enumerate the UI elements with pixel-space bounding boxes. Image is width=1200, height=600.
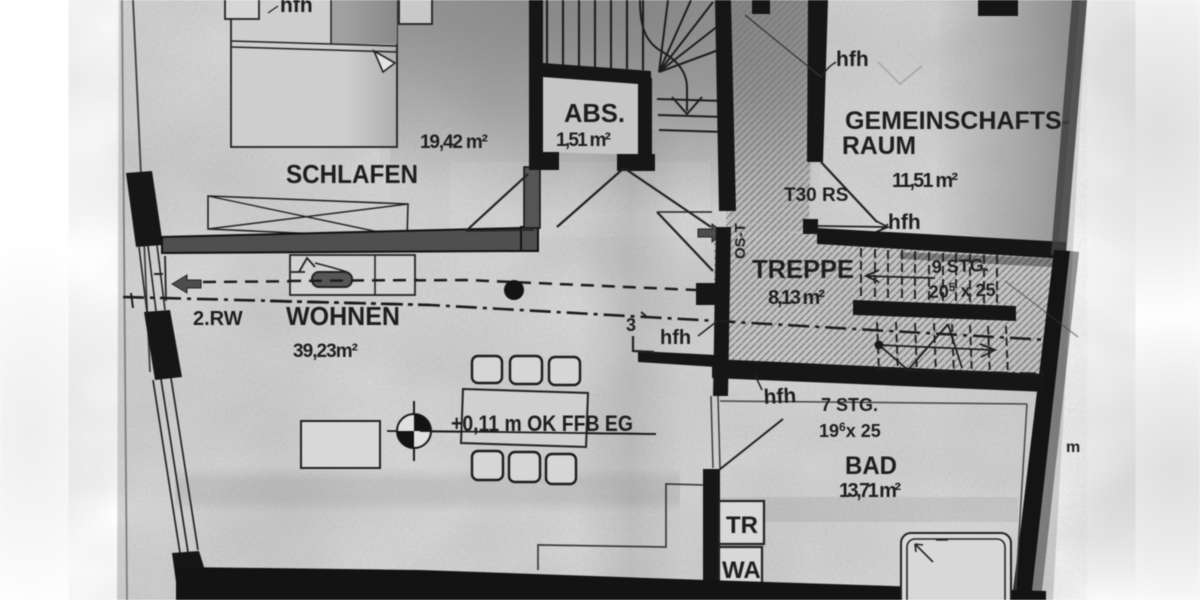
svg-text:TR: TR — [726, 512, 758, 539]
svg-text:2.RW: 2.RW — [193, 308, 243, 330]
svg-text:11,51 m²: 11,51 m² — [892, 170, 958, 192]
svg-text:hfh: hfh — [763, 384, 797, 409]
svg-text:TREPPE: TREPPE — [752, 254, 854, 284]
svg-text:WOHNEN: WOHNEN — [286, 301, 400, 331]
svg-text:+0,11 m OK FFB EG: +0,11 m OK FFB EG — [451, 411, 633, 436]
svg-text:m: m — [1066, 439, 1080, 456]
svg-text:T30 RS: T30 RS — [784, 185, 848, 206]
svg-text:39,23m²: 39,23m² — [293, 341, 358, 362]
svg-text:205 x 25: 205 x 25 — [928, 279, 995, 302]
svg-text:19,42 m²: 19,42 m² — [420, 132, 488, 153]
svg-text:1,51 m²: 1,51 m² — [556, 130, 611, 151]
svg-text:hfh: hfh — [660, 327, 691, 349]
svg-text:RAUM: RAUM — [842, 132, 916, 160]
svg-text:OS-T: OS-T — [732, 223, 749, 259]
svg-text:WA: WA — [722, 557, 761, 584]
svg-text:hfh: hfh — [280, 0, 313, 17]
svg-text:13,71 m²: 13,71 m² — [839, 480, 901, 502]
svg-text:GEMEINSCHAFTS-: GEMEINSCHAFTS- — [845, 107, 1070, 135]
svg-text:SCHLAFEN: SCHLAFEN — [286, 159, 418, 189]
svg-text:8,13 m²: 8,13 m² — [768, 287, 825, 309]
svg-text:BAD: BAD — [845, 452, 897, 480]
svg-text:196x 25: 196x 25 — [819, 420, 881, 441]
svg-text:ABS.: ABS. — [564, 98, 625, 128]
svg-text:3: 3 — [626, 315, 636, 335]
svg-text:hfh: hfh — [888, 211, 921, 234]
svg-text:hfh: hfh — [836, 48, 869, 71]
svg-text:7 STG.: 7 STG. — [821, 395, 878, 415]
svg-text:9 STG.: 9 STG. — [931, 255, 989, 277]
